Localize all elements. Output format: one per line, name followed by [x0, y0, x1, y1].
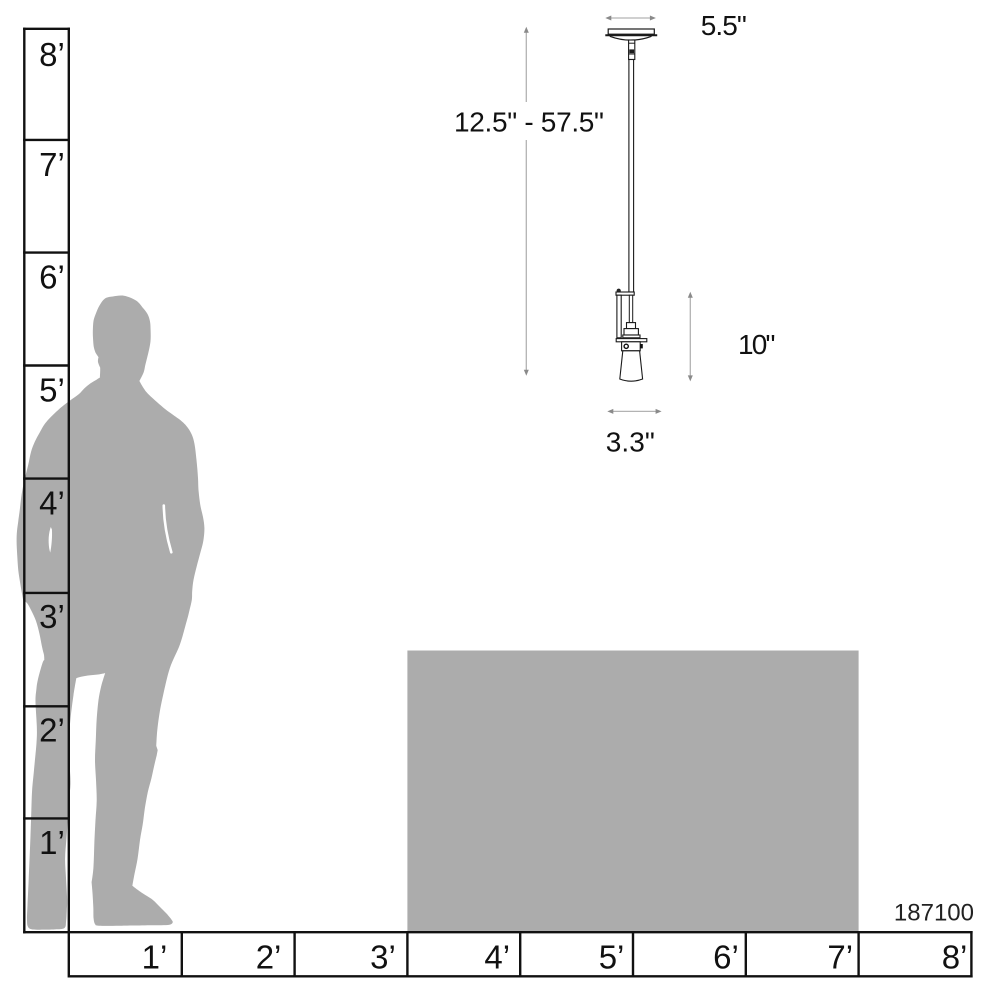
- svg-text:12.5" - 57.5": 12.5" - 57.5": [454, 107, 604, 138]
- svg-text:6’: 6’: [39, 259, 65, 296]
- svg-text:8’: 8’: [39, 36, 65, 73]
- svg-text:4’: 4’: [484, 939, 510, 976]
- svg-text:2’: 2’: [39, 711, 65, 748]
- svg-text:8’: 8’: [942, 939, 968, 976]
- svg-text:1’: 1’: [39, 824, 65, 861]
- svg-text:5’: 5’: [599, 939, 625, 976]
- svg-text:1’: 1’: [142, 939, 168, 976]
- svg-text:187100: 187100: [894, 900, 974, 927]
- svg-text:2’: 2’: [256, 939, 282, 976]
- svg-text:7’: 7’: [827, 939, 853, 976]
- svg-text:10": 10": [738, 329, 776, 360]
- svg-text:3.3": 3.3": [606, 427, 655, 458]
- svg-text:5’: 5’: [39, 372, 65, 409]
- svg-text:3’: 3’: [39, 598, 65, 635]
- svg-text:3’: 3’: [370, 939, 396, 976]
- svg-text:4’: 4’: [39, 485, 65, 522]
- svg-text:7’: 7’: [39, 146, 65, 183]
- svg-text:6’: 6’: [713, 939, 739, 976]
- svg-text:5.5": 5.5": [701, 10, 747, 41]
